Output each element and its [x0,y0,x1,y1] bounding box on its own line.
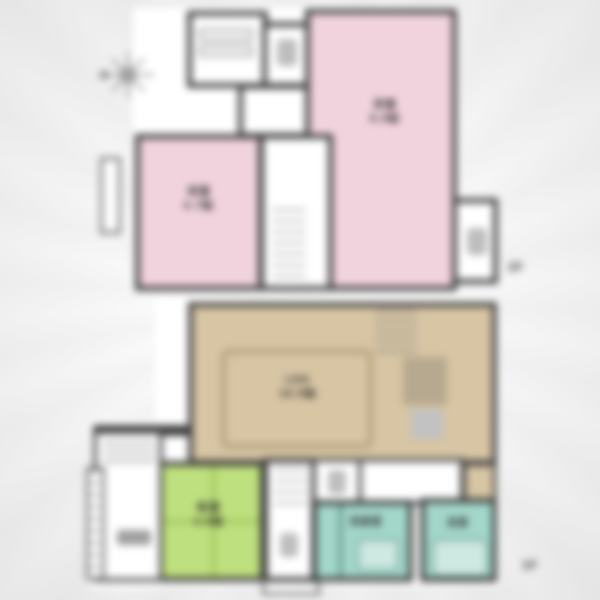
side-fence [86,467,105,580]
room-name: 洋室 [340,98,430,112]
porch-fixture [117,530,151,545]
washer-icon [357,539,399,571]
closet-shelf [199,45,253,57]
f1-entrance-hall [263,458,316,582]
room-label-bedroom-right: 洋室 8.5帖 [340,98,430,126]
room-size: 8.5帖 [340,112,430,126]
toilet-icon [277,39,297,66]
room-name: 洋室 [154,185,244,199]
f2-balcony [100,157,121,234]
porch-steps-icon [103,442,155,466]
washroom-partition [339,505,342,577]
compass-west-marker [100,71,108,79]
bathtub-icon [432,539,488,577]
kitchen-counter-icon [403,357,447,405]
blurred-floorplan-photo: 洋室 8.5帖 洋室 6.7帖 2F LDK 16.5帖 和室 [0,0,600,600]
floorplan-scene: 洋室 8.5帖 洋室 6.7帖 2F LDK 16.5帖 和室 [0,0,600,600]
floor-tag-2f: 2F [508,260,524,274]
hall-steps-icon [274,469,308,505]
f1-hall-stub [462,462,497,503]
floor-tag-1f: 1F [522,558,538,572]
f2-closet-room [187,11,268,88]
entry-porch-step [262,580,320,595]
f2-toilet-right [452,198,498,284]
room-size: 16.5帖 [252,387,344,401]
room-label-tatami: 和室 4.5帖 [164,501,254,529]
room-size: 6.7帖 [154,199,244,213]
room-label-washroom: 洗面室 [343,513,389,528]
kitchen-sink-icon [411,409,443,439]
f2-toilet-top [262,22,310,88]
f1-toilet [312,458,362,505]
room-label-bedroom-left: 洋室 6.7帖 [154,185,244,213]
f1-bathroom [420,498,497,582]
stairs-icon [375,310,417,354]
genkan-step-icon [280,533,298,557]
room-name: 和室 [164,501,254,515]
f2-stair-corridor [259,134,333,291]
toilet-icon [467,228,487,255]
room-name: LDK [252,373,344,387]
closet-shelf [199,28,253,41]
room-label-ldk: LDK 16.5帖 [252,373,344,401]
compass-icon [100,48,156,102]
room-label-bath: 浴室 [425,514,491,529]
toilet-icon [328,470,346,494]
stairs-icon [272,209,306,285]
room-size: 4.5帖 [164,515,254,529]
